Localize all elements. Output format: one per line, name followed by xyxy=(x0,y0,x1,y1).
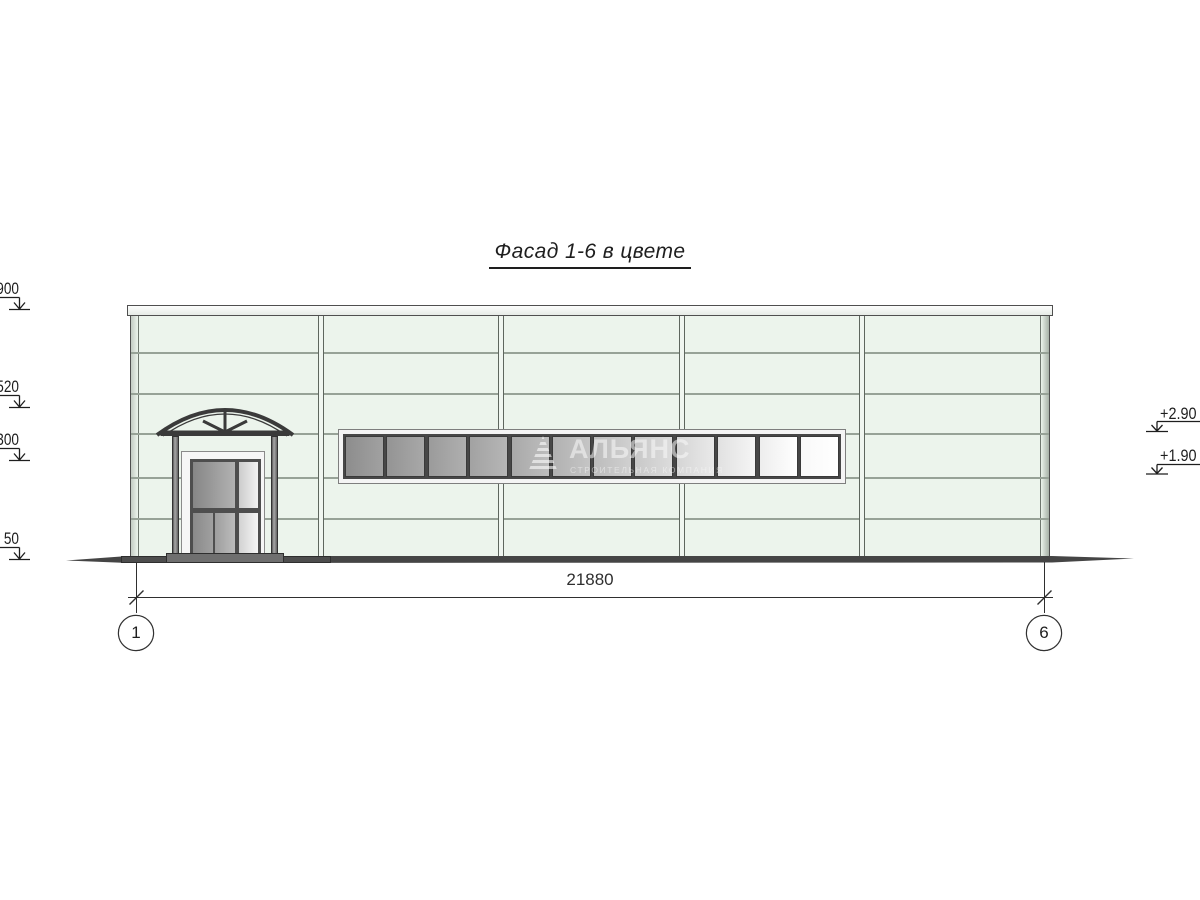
window-pane xyxy=(800,436,839,477)
window-pane xyxy=(759,436,798,477)
window-unit xyxy=(428,436,508,477)
elevation-label-left-3: 300 xyxy=(0,430,19,450)
entrance-door xyxy=(190,459,261,556)
panel-joint-line xyxy=(131,518,1049,520)
facade-drawing: Фасад 1-6 в цвете xyxy=(0,0,1200,900)
watermark-text: АЛЬЯНС xyxy=(569,434,691,465)
porch-platform xyxy=(166,553,284,563)
panel-joint-line xyxy=(131,352,1049,354)
sidelight-glass-lower xyxy=(239,513,258,553)
drawing-title: Фасад 1-6 в цвете xyxy=(390,240,790,269)
panel-joint-line xyxy=(131,393,1049,395)
elevation-label-left-1: 900 xyxy=(0,279,19,299)
watermark-tagline: СТРОИТЕЛЬНАЯ КОМПАНИЯ xyxy=(570,465,724,475)
window-unit xyxy=(759,436,839,477)
elevation-label-right-1: +2.90 xyxy=(1160,404,1200,424)
door-glass-lower-right xyxy=(215,513,235,553)
window-pane xyxy=(428,436,467,477)
canopy-post-left xyxy=(172,436,179,557)
sidelight-glass-upper xyxy=(239,462,258,508)
wall-mullion xyxy=(859,316,865,556)
canopy-post-right xyxy=(271,436,278,557)
window-pane xyxy=(345,436,384,477)
axis-bubble-6: 6 xyxy=(1026,615,1062,651)
axis-bubble-1: 1 xyxy=(118,615,154,651)
elevation-label-right-2: +1.90 xyxy=(1160,446,1200,466)
axis-6-label: 6 xyxy=(1039,623,1048,643)
window-unit xyxy=(345,436,425,477)
axis-1-label: 1 xyxy=(131,623,140,643)
wall-mullion xyxy=(318,316,324,556)
window-pane xyxy=(386,436,425,477)
elevation-label-left-2: 520 xyxy=(0,377,19,397)
door-glass-upper xyxy=(193,462,235,508)
elevation-label-left-4: 50 xyxy=(0,529,19,549)
drawing-title-text: Фасад 1-6 в цвете xyxy=(489,240,692,269)
dimension-value: 21880 xyxy=(540,570,640,590)
door-glass-lower-left xyxy=(193,513,213,553)
elevation-arrows-left xyxy=(0,298,30,560)
window-pane xyxy=(469,436,508,477)
